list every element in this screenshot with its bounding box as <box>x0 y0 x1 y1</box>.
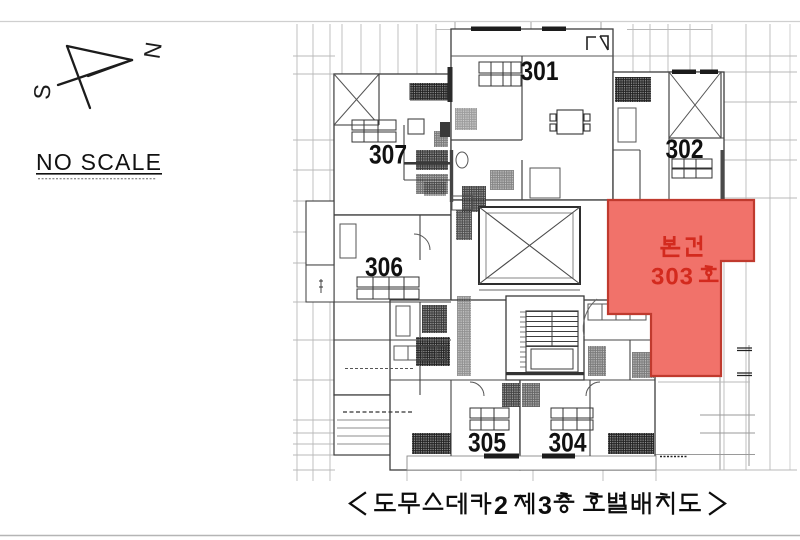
svg-text:304: 304 <box>549 428 587 458</box>
svg-text:S: S <box>29 83 56 100</box>
svg-text:306: 306 <box>365 252 403 282</box>
svg-text:3: 3 <box>538 492 552 520</box>
svg-text:305: 305 <box>468 428 506 458</box>
svg-text:303: 303 <box>651 264 693 291</box>
svg-text:NO SCALE: NO SCALE <box>36 149 161 175</box>
svg-text:2: 2 <box>494 492 508 520</box>
svg-text:307: 307 <box>369 140 407 170</box>
svg-text:301: 301 <box>521 56 559 86</box>
svg-text:302: 302 <box>666 134 704 164</box>
